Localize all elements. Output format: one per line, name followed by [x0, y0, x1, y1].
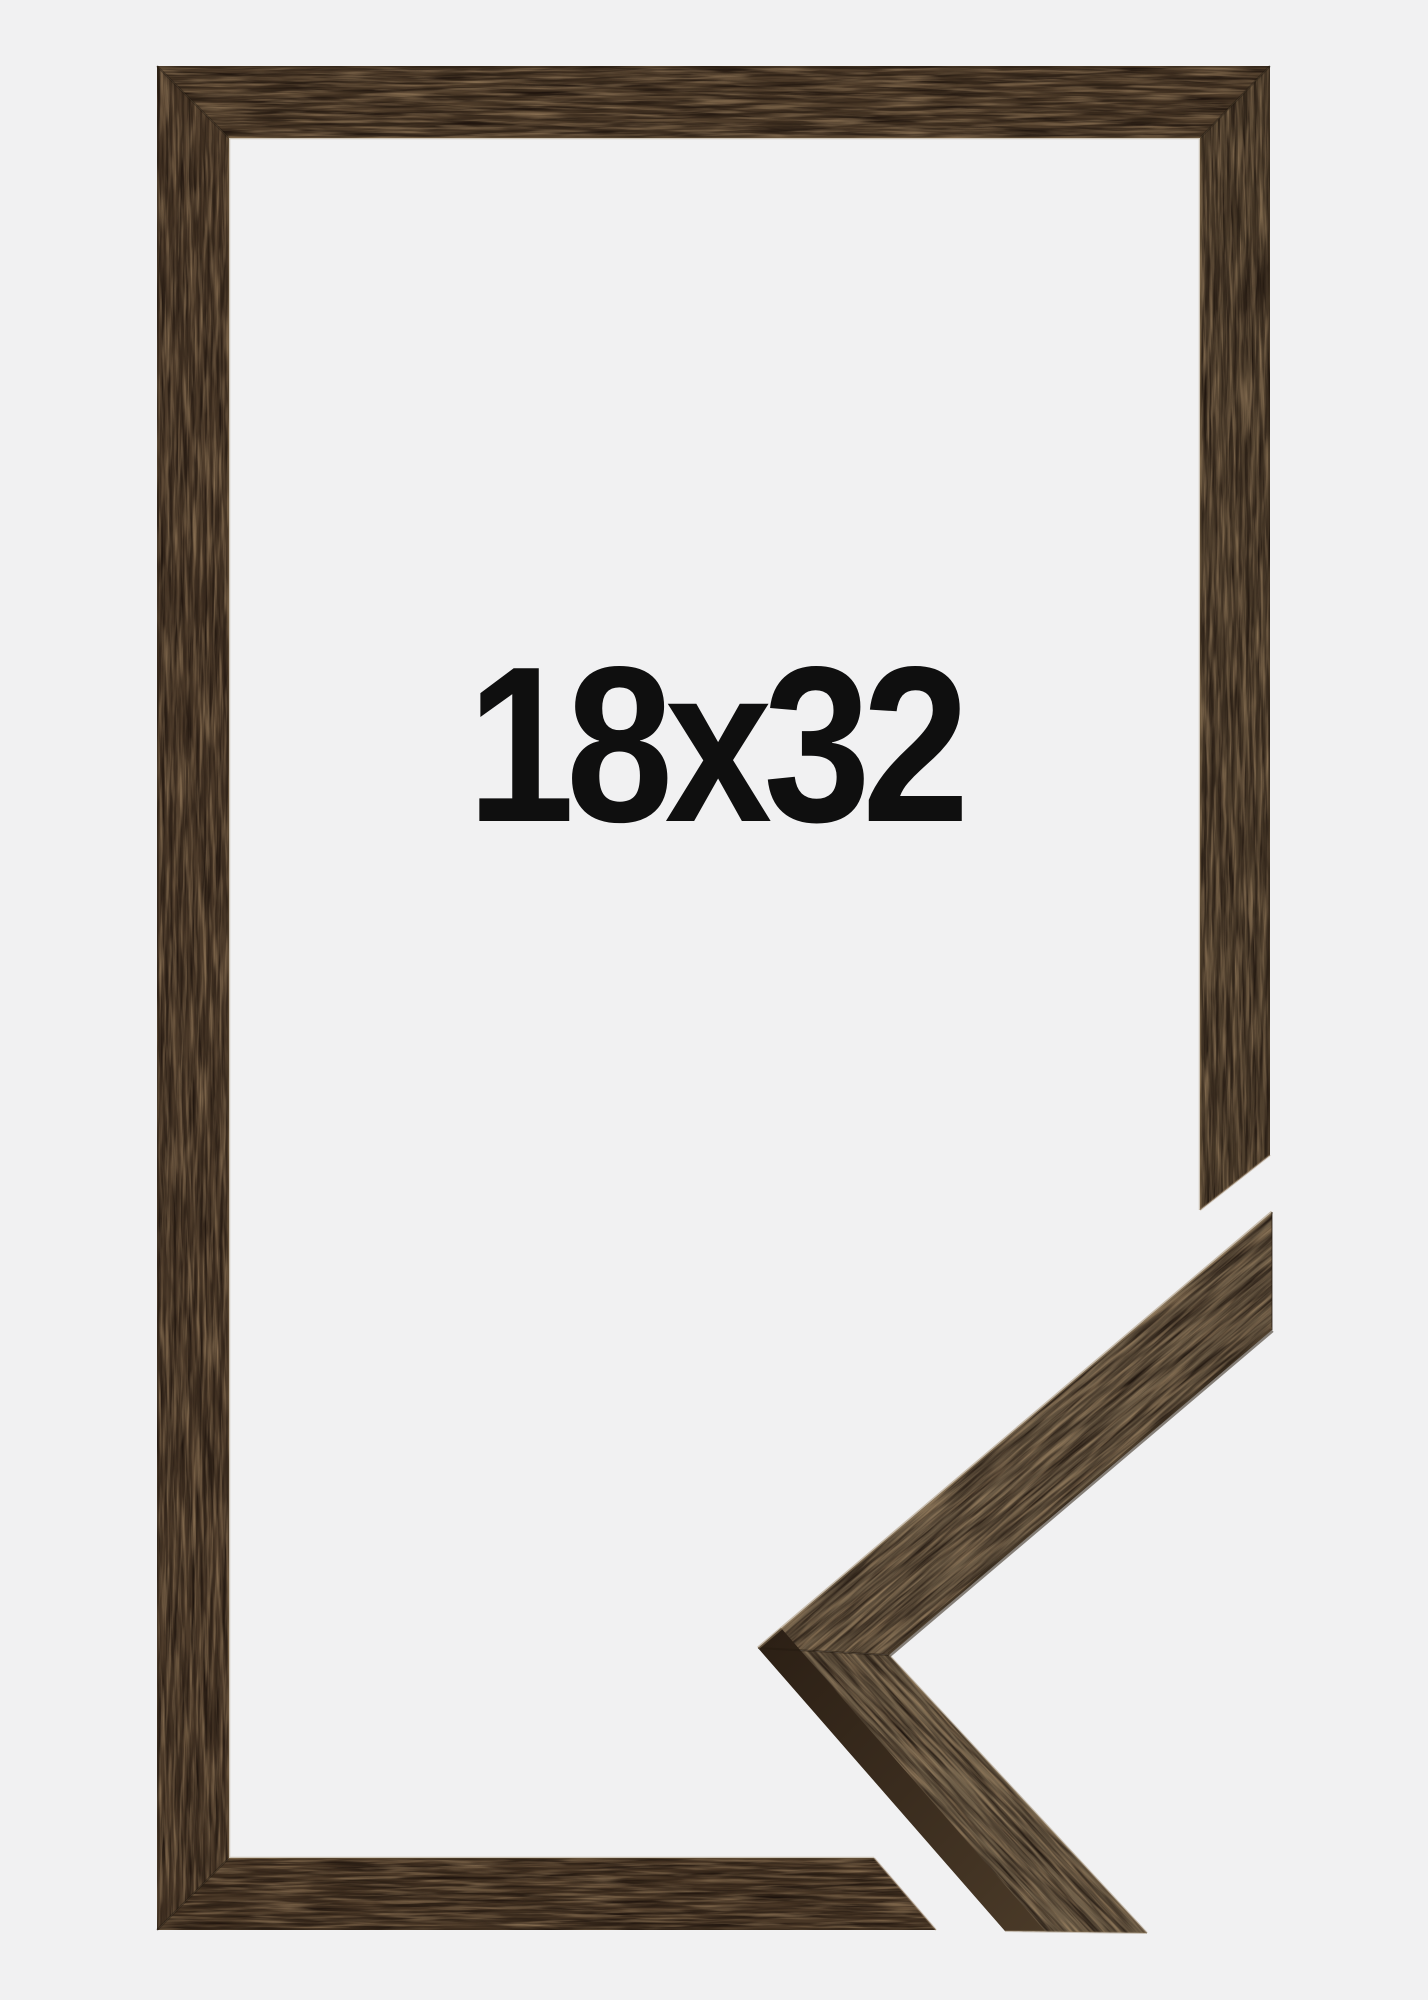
size-label: 18x32: [467, 634, 961, 856]
frame-right-bar: [1190, 50, 1280, 1230]
picture-frame-photo: [0, 0, 1428, 2000]
product-image: 18x32: [0, 0, 1428, 2000]
